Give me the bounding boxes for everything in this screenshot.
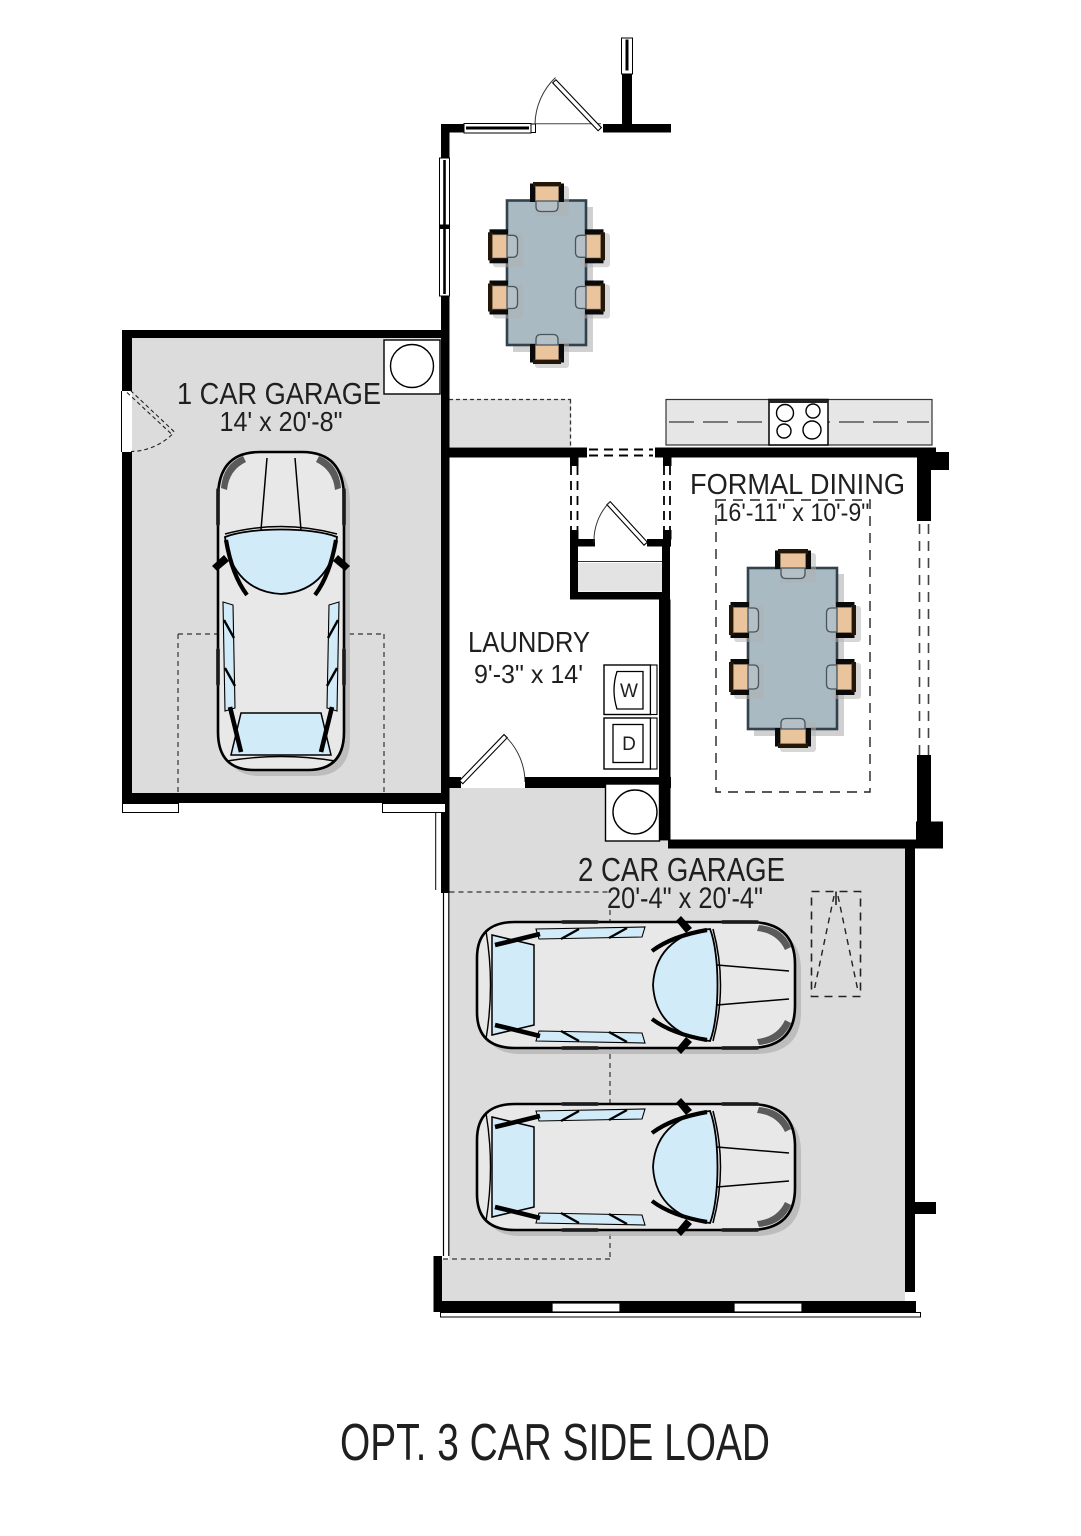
- svg-text:D: D: [622, 734, 636, 755]
- svg-text:LAUNDRY: LAUNDRY: [468, 627, 590, 659]
- svg-text:20'-4" x 20'-4": 20'-4" x 20'-4": [607, 882, 763, 915]
- svg-text:14' x 20'-8": 14' x 20'-8": [220, 406, 343, 437]
- svg-text:9'-3" x 14': 9'-3" x 14': [474, 659, 583, 689]
- svg-text:FORMAL DINING: FORMAL DINING: [690, 469, 905, 501]
- svg-text:OPT. 3 CAR SIDE LOAD: OPT. 3 CAR SIDE LOAD: [340, 1414, 770, 1472]
- svg-text:16'-11" x 10'-9": 16'-11" x 10'-9": [716, 499, 870, 527]
- svg-text:W: W: [620, 681, 638, 702]
